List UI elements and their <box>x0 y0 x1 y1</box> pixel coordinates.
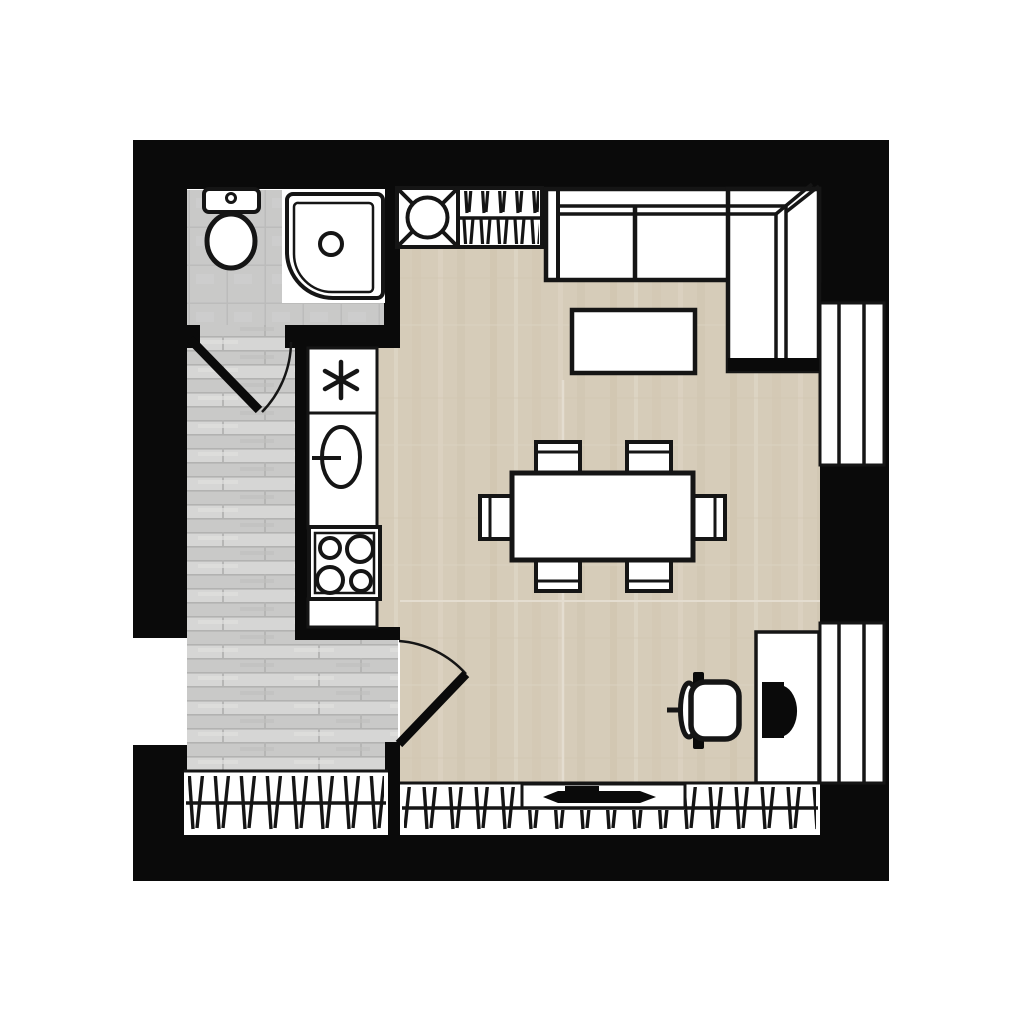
cabinet-below-stove <box>308 599 377 627</box>
shower-drain <box>320 233 342 255</box>
sofa-right-front-edge <box>728 358 819 371</box>
floor-plan-canvas <box>0 0 1024 1024</box>
wall-right-upper <box>820 140 889 305</box>
dining-chair-top-left <box>536 442 580 473</box>
washing-machine <box>397 188 458 247</box>
wall-bottom <box>133 835 889 881</box>
dining-chair-right <box>693 496 725 539</box>
dining-chair-top-right <box>627 442 671 473</box>
dining-chair-bottom-left <box>536 560 580 591</box>
dining-table <box>512 473 693 560</box>
shower-tray <box>282 189 385 303</box>
wall-top <box>133 140 889 189</box>
coffee-table <box>572 310 695 373</box>
window-left-hall <box>133 638 187 745</box>
wall-left-lower <box>133 745 187 845</box>
wall-stub-kitchen-bottom <box>295 627 400 640</box>
wall-right-lower <box>820 783 889 845</box>
toilet-flush-button <box>227 194 236 203</box>
office-chair-seat <box>691 682 739 739</box>
dining-chair-bottom-right <box>627 560 671 591</box>
toilet <box>204 189 259 268</box>
window-right-lower <box>820 623 884 783</box>
floor-plan-drawing <box>0 0 1024 1024</box>
window-band-bottom-left <box>184 771 388 835</box>
cooktop-4-burner <box>309 527 380 599</box>
dining-chair-left <box>480 496 512 539</box>
wardrobe-rack <box>458 188 542 247</box>
window-band-bottom-right <box>400 783 820 835</box>
kitchen-counter <box>308 348 380 627</box>
window-right-upper <box>820 303 884 465</box>
toilet-bowl <box>207 214 255 268</box>
wall-right-middle <box>820 465 889 623</box>
wall-left-upper <box>133 140 187 638</box>
